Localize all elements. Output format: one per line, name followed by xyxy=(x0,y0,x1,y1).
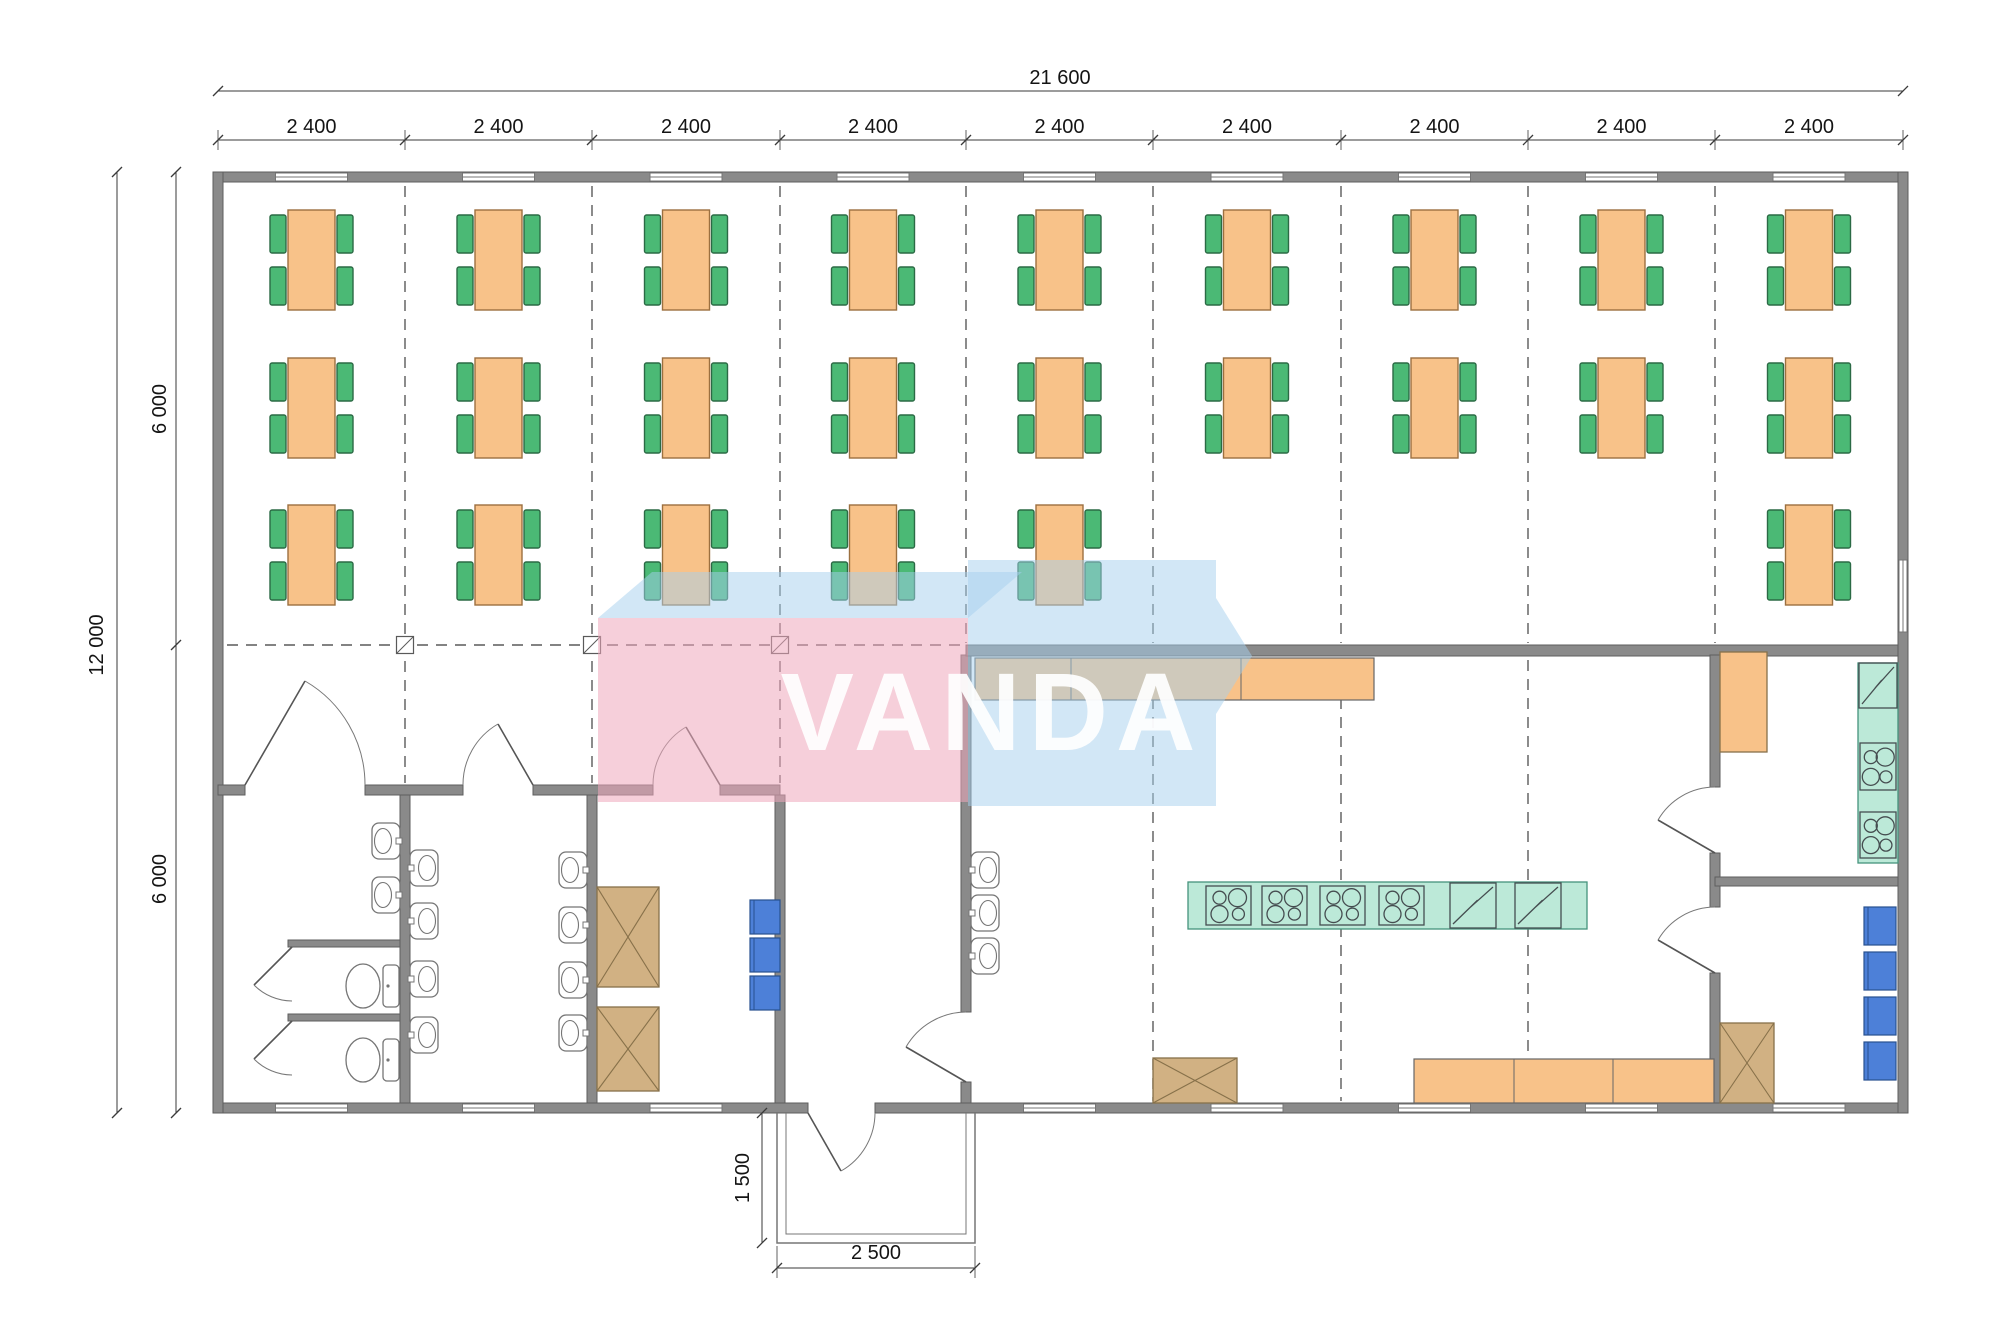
sink-faucet xyxy=(969,953,975,959)
chair xyxy=(524,415,540,453)
chair xyxy=(1085,415,1101,453)
dining-table xyxy=(850,210,897,310)
dining-table-set xyxy=(645,358,728,458)
watermark-text: VANDA xyxy=(781,651,1204,774)
porch-outline xyxy=(777,1113,975,1243)
toilet-button xyxy=(386,984,389,987)
sink xyxy=(559,962,589,998)
interior-wall xyxy=(218,785,245,795)
chair xyxy=(1460,215,1476,253)
chair xyxy=(1085,363,1101,401)
chair xyxy=(1580,363,1596,401)
chair xyxy=(524,215,540,253)
chair xyxy=(899,267,915,305)
sink-faucet xyxy=(583,977,589,983)
chair xyxy=(832,215,848,253)
chair xyxy=(1393,363,1409,401)
dining-table xyxy=(663,210,710,310)
crossed-cabinet xyxy=(597,1007,659,1091)
chair xyxy=(712,415,728,453)
dim-label-bay: 2 400 xyxy=(1784,116,1834,138)
dining-table xyxy=(1786,358,1833,458)
dining-table xyxy=(1224,358,1271,458)
exterior-wall-right xyxy=(1898,172,1908,1113)
sink-faucet xyxy=(969,910,975,916)
sink xyxy=(408,961,438,997)
chair xyxy=(1460,415,1476,453)
chair xyxy=(899,510,915,548)
interior-wall xyxy=(961,1082,971,1103)
chair xyxy=(712,363,728,401)
door-arc xyxy=(1658,907,1715,940)
dim-label-bay: 2 400 xyxy=(1596,116,1646,138)
dining-table xyxy=(1786,210,1833,310)
dining-table-set xyxy=(270,505,353,605)
chair xyxy=(337,363,353,401)
chair xyxy=(645,215,661,253)
watermark-blue-band xyxy=(598,572,1022,618)
dining-table xyxy=(1598,358,1645,458)
chair xyxy=(337,267,353,305)
chair xyxy=(457,267,473,305)
chair xyxy=(712,510,728,548)
dining-layer xyxy=(270,210,1851,605)
dining-table-set xyxy=(457,358,540,458)
chair xyxy=(1835,215,1851,253)
locker-blue xyxy=(750,938,780,972)
door-leaf xyxy=(254,1021,292,1059)
chair xyxy=(1835,510,1851,548)
sink-faucet xyxy=(396,892,402,898)
locker-box xyxy=(1864,997,1896,1035)
sink xyxy=(969,852,999,888)
dining-table-set xyxy=(1580,358,1663,458)
dim-label-overall-height: 12 000 xyxy=(86,614,108,675)
chair xyxy=(1273,363,1289,401)
dining-table-set xyxy=(1018,210,1101,310)
dining-table xyxy=(1036,358,1083,458)
locker-blue xyxy=(750,900,780,934)
chair xyxy=(457,363,473,401)
locker-blue xyxy=(1864,907,1896,945)
locker-blue xyxy=(1864,997,1896,1035)
chair xyxy=(712,267,728,305)
chair xyxy=(457,215,473,253)
chair xyxy=(270,510,286,548)
dining-table xyxy=(1224,210,1271,310)
dining-table xyxy=(1598,210,1645,310)
chair xyxy=(1835,363,1851,401)
dining-table xyxy=(475,210,522,310)
interior-wall xyxy=(1710,655,1720,787)
dim-label-bay: 2 400 xyxy=(473,116,523,138)
chair xyxy=(1393,415,1409,453)
kitchen-counter xyxy=(1414,1059,1714,1103)
dining-table-set xyxy=(1018,358,1101,458)
locker-blue xyxy=(1864,1042,1896,1080)
chair xyxy=(1835,562,1851,600)
dim-label-half-height: 6 000 xyxy=(149,854,171,904)
toilet-button xyxy=(386,1058,389,1061)
chair xyxy=(1018,510,1034,548)
sink xyxy=(559,1015,589,1051)
chair xyxy=(337,215,353,253)
toilet-bowl xyxy=(346,1038,380,1082)
chair xyxy=(1393,215,1409,253)
sink xyxy=(372,877,402,913)
chair xyxy=(1647,215,1663,253)
chair xyxy=(1768,215,1784,253)
exterior-wall-left xyxy=(213,172,223,1113)
dining-table xyxy=(1786,505,1833,605)
sink-faucet xyxy=(583,1030,589,1036)
dining-table-set xyxy=(1393,358,1476,458)
door-arc xyxy=(254,1059,292,1075)
floor-plan-svg: 21 6002 4002 4002 4002 4002 4002 4002 40… xyxy=(0,0,2000,1338)
right-rooms-divider xyxy=(1715,877,1898,886)
chair xyxy=(899,363,915,401)
chair xyxy=(832,363,848,401)
chair xyxy=(1580,215,1596,253)
dining-table xyxy=(850,358,897,458)
door-leaf xyxy=(1658,820,1715,853)
dim-label-half-height: 6 000 xyxy=(149,384,171,434)
dining-table-set xyxy=(1393,210,1476,310)
wc-stall-partition xyxy=(288,940,400,947)
chair xyxy=(832,415,848,453)
chair xyxy=(1018,363,1034,401)
chair xyxy=(524,562,540,600)
chair xyxy=(270,363,286,401)
dining-table-set xyxy=(270,210,353,310)
chair xyxy=(1768,510,1784,548)
sink xyxy=(408,1017,438,1053)
toilet-tank xyxy=(383,1039,399,1081)
locker-box xyxy=(1864,952,1896,990)
crossed-cabinet xyxy=(1153,1058,1237,1103)
kitchen-equipment-counter xyxy=(1188,882,1587,929)
chair xyxy=(1085,510,1101,548)
interior-wall xyxy=(587,795,597,1103)
dining-table-set xyxy=(1768,210,1851,310)
door-arc xyxy=(1658,787,1715,820)
door-arc xyxy=(463,724,498,785)
dim-label-bay: 2 400 xyxy=(1409,116,1459,138)
chair xyxy=(1018,267,1034,305)
dining-table-set xyxy=(457,505,540,605)
chair xyxy=(270,215,286,253)
dining-table-set xyxy=(457,210,540,310)
toilet xyxy=(346,1038,399,1082)
sink xyxy=(969,895,999,931)
dim-label-overall-width: 21 600 xyxy=(1029,67,1090,89)
crossed-cabinet xyxy=(597,887,659,987)
dim-label-bay: 2 400 xyxy=(848,116,898,138)
grid-column-marker xyxy=(584,637,601,654)
door-arc xyxy=(254,985,292,1001)
dim-label-porch-width: 2 500 xyxy=(851,1242,901,1264)
locker-box xyxy=(1864,1042,1896,1080)
door-leaf xyxy=(808,1113,841,1171)
chair xyxy=(524,363,540,401)
chair xyxy=(1580,415,1596,453)
chair xyxy=(645,363,661,401)
chair xyxy=(1768,363,1784,401)
floor-plan: 21 6002 4002 4002 4002 4002 4002 4002 40… xyxy=(0,0,2000,1338)
dining-table xyxy=(1411,210,1458,310)
door-arc xyxy=(841,1113,875,1171)
chair xyxy=(1647,415,1663,453)
dining-table xyxy=(288,358,335,458)
sink-faucet xyxy=(408,918,414,924)
dining-table xyxy=(475,505,522,605)
chair xyxy=(1206,267,1222,305)
chair xyxy=(457,562,473,600)
toilet-bowl xyxy=(346,964,380,1008)
sink xyxy=(559,907,589,943)
chair xyxy=(832,510,848,548)
chair xyxy=(337,562,353,600)
sink-faucet xyxy=(396,838,402,844)
sink-faucet xyxy=(408,865,414,871)
door-arc xyxy=(305,681,365,785)
sink-faucet xyxy=(408,976,414,982)
dining-table xyxy=(1036,210,1083,310)
door-leaf xyxy=(906,1047,966,1082)
grid-column-marker xyxy=(397,637,414,654)
chair xyxy=(457,415,473,453)
sink xyxy=(969,938,999,974)
porch-inner-line xyxy=(786,1113,966,1234)
chair xyxy=(1206,363,1222,401)
chair xyxy=(524,510,540,548)
chair xyxy=(645,415,661,453)
chair xyxy=(1273,215,1289,253)
chair xyxy=(1085,267,1101,305)
sink-faucet xyxy=(583,867,589,873)
chair xyxy=(524,267,540,305)
dining-table xyxy=(475,358,522,458)
chair xyxy=(1647,363,1663,401)
dining-table-set xyxy=(832,210,915,310)
chair xyxy=(1460,363,1476,401)
chair xyxy=(1206,215,1222,253)
chair xyxy=(270,415,286,453)
dining-table-set xyxy=(1580,210,1663,310)
chair xyxy=(270,267,286,305)
door-leaf xyxy=(498,724,533,785)
sink xyxy=(408,903,438,939)
chair xyxy=(270,562,286,600)
sink-faucet xyxy=(969,867,975,873)
wc-stall-partition xyxy=(288,1014,400,1021)
dining-table-set xyxy=(1768,358,1851,458)
chair xyxy=(1835,267,1851,305)
dining-table-set xyxy=(1206,210,1289,310)
chair xyxy=(1206,415,1222,453)
dining-table-set xyxy=(1768,505,1851,605)
dining-table xyxy=(288,210,335,310)
dim-label-bay: 2 400 xyxy=(286,116,336,138)
dining-table-set xyxy=(832,358,915,458)
counter-cabinet xyxy=(1720,652,1767,752)
chair xyxy=(1768,267,1784,305)
sink-faucet xyxy=(583,922,589,928)
chair xyxy=(645,510,661,548)
cabinet-box xyxy=(1720,652,1767,752)
sink xyxy=(408,850,438,886)
chair xyxy=(1273,267,1289,305)
locker-blue xyxy=(750,976,780,1010)
chair xyxy=(337,510,353,548)
chair xyxy=(899,415,915,453)
chair xyxy=(645,267,661,305)
dining-table xyxy=(1411,358,1458,458)
crossed-cabinet xyxy=(1720,1023,1774,1103)
sink xyxy=(559,852,589,888)
chair xyxy=(1768,562,1784,600)
chair xyxy=(1393,267,1409,305)
sink-faucet xyxy=(408,1032,414,1038)
chair xyxy=(1768,415,1784,453)
chair xyxy=(337,415,353,453)
dim-label-bay: 2 400 xyxy=(1034,116,1084,138)
sink xyxy=(372,823,402,859)
door-leaf xyxy=(254,947,292,985)
chair xyxy=(1835,415,1851,453)
dim-label-bay: 2 400 xyxy=(1222,116,1272,138)
dim-label-porch-depth: 1 500 xyxy=(732,1153,754,1203)
watermark-layer: VANDA xyxy=(598,560,1252,806)
chair xyxy=(1580,267,1596,305)
chair xyxy=(1085,215,1101,253)
chair xyxy=(899,215,915,253)
toilet-tank xyxy=(383,965,399,1007)
chair xyxy=(832,267,848,305)
interior-wall xyxy=(365,785,463,795)
dining-table xyxy=(663,358,710,458)
chair xyxy=(1018,415,1034,453)
door-leaf xyxy=(1658,940,1715,973)
dining-table-set xyxy=(1206,358,1289,458)
dim-label-bay: 2 400 xyxy=(661,116,711,138)
dining-table-set xyxy=(270,358,353,458)
door-arc xyxy=(906,1012,966,1047)
locker-box xyxy=(1864,907,1896,945)
porch-layer xyxy=(777,1113,975,1243)
chair xyxy=(1647,267,1663,305)
chair xyxy=(1018,215,1034,253)
chair xyxy=(457,510,473,548)
door-leaf xyxy=(245,681,305,785)
chair xyxy=(712,215,728,253)
chair xyxy=(1460,267,1476,305)
dining-table xyxy=(288,505,335,605)
toilet xyxy=(346,964,399,1008)
dining-table-set xyxy=(645,210,728,310)
locker-blue xyxy=(1864,952,1896,990)
chair xyxy=(1273,415,1289,453)
